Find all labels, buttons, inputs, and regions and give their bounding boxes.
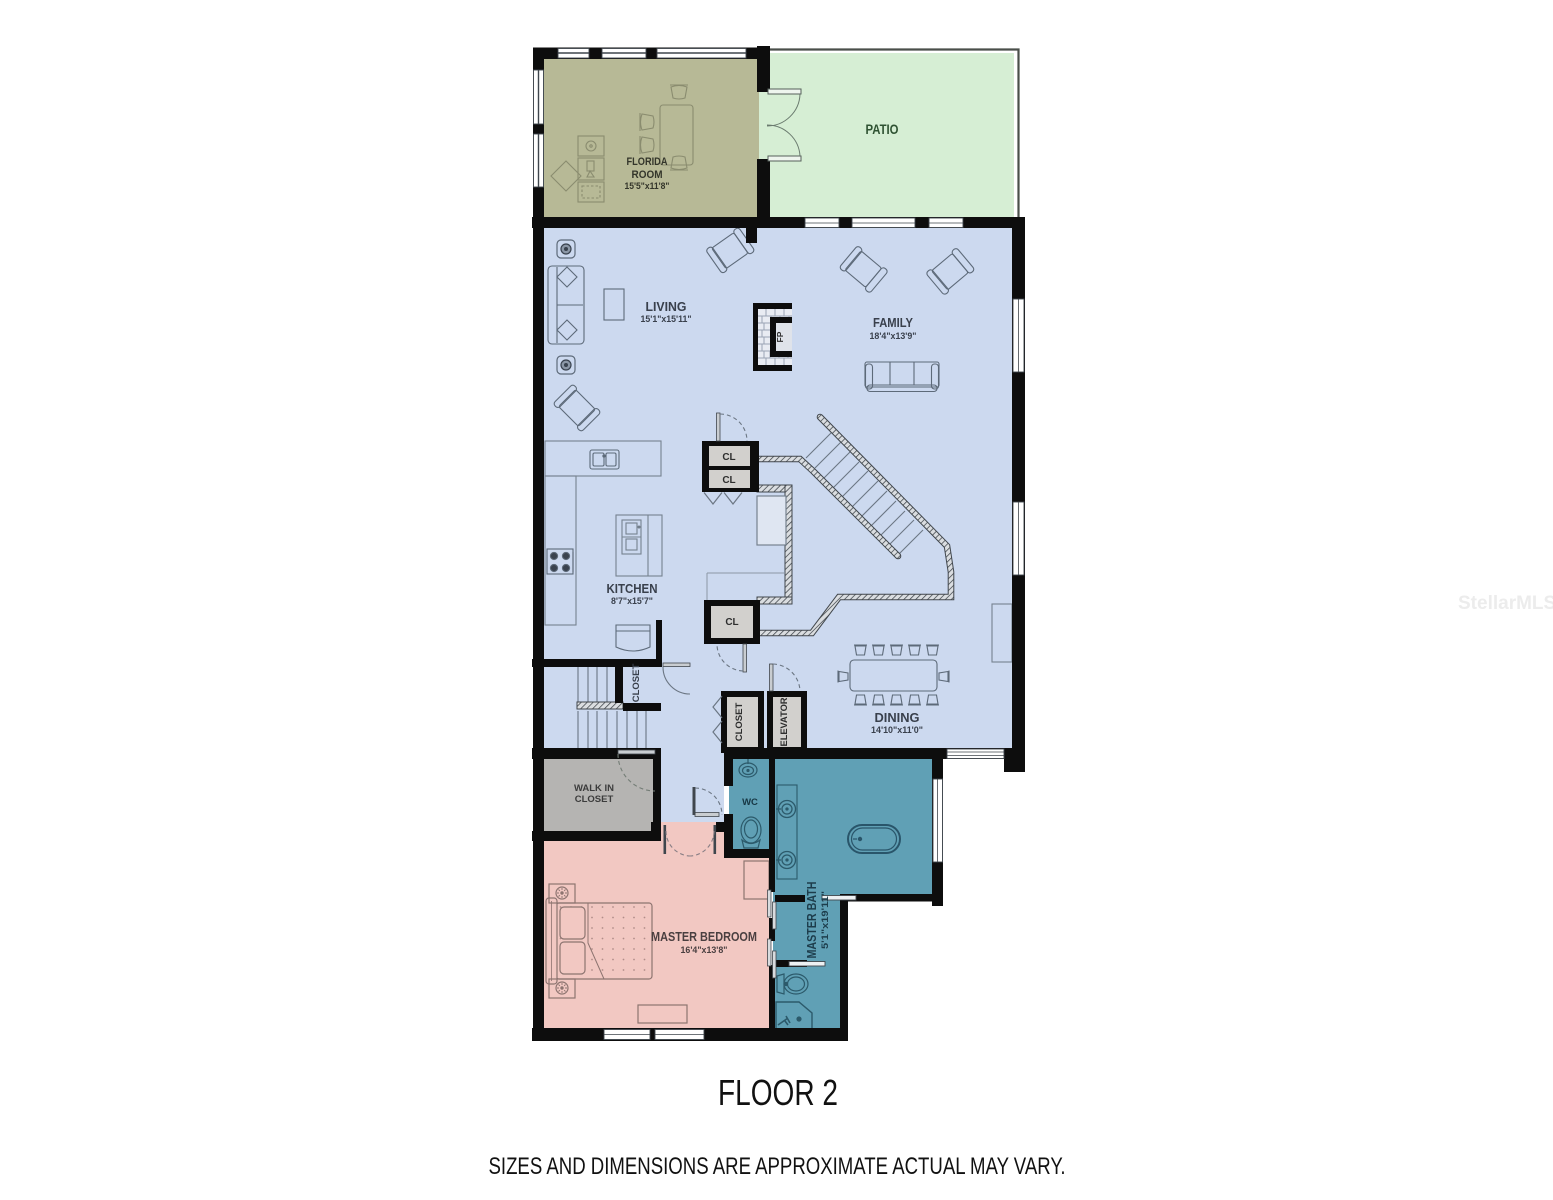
svg-text:StellarMLS: StellarMLS [1458, 593, 1553, 614]
svg-text:FAMILY: FAMILY [873, 315, 913, 330]
svg-text:WALK IN: WALK IN [574, 783, 614, 794]
svg-text:KITCHEN: KITCHEN [607, 582, 658, 596]
svg-text:LIVING: LIVING [646, 299, 687, 314]
svg-text:18'4"x13'9": 18'4"x13'9" [870, 331, 917, 342]
svg-text:15'5"x11'8": 15'5"x11'8" [625, 181, 670, 192]
svg-text:CL: CL [722, 475, 735, 486]
svg-text:8'7"x15'7": 8'7"x15'7" [611, 596, 653, 607]
svg-text:DINING: DINING [875, 710, 920, 725]
svg-text:FLORIDA: FLORIDA [627, 156, 668, 168]
svg-text:FP: FP [775, 331, 785, 342]
svg-text:CL: CL [722, 452, 735, 463]
svg-text:5'1"x19'11": 5'1"x19'11" [820, 891, 830, 949]
svg-text:CL: CL [725, 617, 738, 628]
svg-text:FLOOR 2: FLOOR 2 [718, 1072, 838, 1113]
svg-text:ROOM: ROOM [632, 169, 663, 181]
svg-text:WC: WC [742, 797, 758, 808]
svg-text:14'10"x11'0": 14'10"x11'0" [871, 725, 923, 736]
svg-text:ELEVATOR: ELEVATOR [779, 697, 790, 746]
svg-text:CLOSET: CLOSET [631, 664, 642, 703]
svg-text:CLOSET: CLOSET [575, 794, 614, 805]
svg-text:CLOSET: CLOSET [734, 703, 745, 742]
svg-text:PATIO: PATIO [866, 122, 899, 137]
svg-text:15'1"x15'11": 15'1"x15'11" [641, 314, 692, 325]
svg-text:SIZES AND DIMENSIONS ARE APPRO: SIZES AND DIMENSIONS ARE APPROXIMATE ACT… [489, 1153, 1066, 1180]
svg-text:16'4"x13'8": 16'4"x13'8" [681, 945, 728, 956]
svg-text:MASTER BATH: MASTER BATH [804, 882, 819, 959]
svg-text:MASTER BEDROOM: MASTER BEDROOM [651, 929, 757, 944]
